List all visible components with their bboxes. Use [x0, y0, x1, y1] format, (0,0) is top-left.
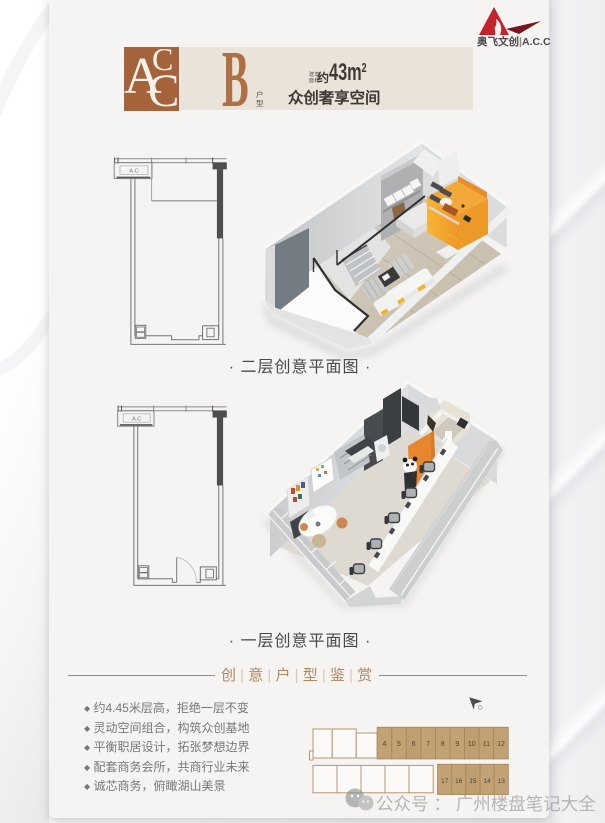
svg-text:5: 5	[397, 741, 401, 748]
svg-text:8: 8	[441, 741, 445, 748]
svg-text:16: 16	[455, 778, 463, 785]
svg-text:15: 15	[469, 778, 477, 785]
svg-text:4: 4	[383, 741, 387, 748]
svg-text:11: 11	[483, 741, 490, 748]
svg-text:13: 13	[498, 778, 506, 785]
svg-text:17: 17	[441, 778, 449, 785]
svg-text:6: 6	[412, 741, 416, 748]
svg-text:10: 10	[468, 741, 476, 748]
svg-text:9: 9	[455, 741, 459, 748]
svg-text:12: 12	[497, 741, 505, 748]
svg-text:14: 14	[483, 778, 491, 785]
svg-text:7: 7	[426, 741, 430, 748]
